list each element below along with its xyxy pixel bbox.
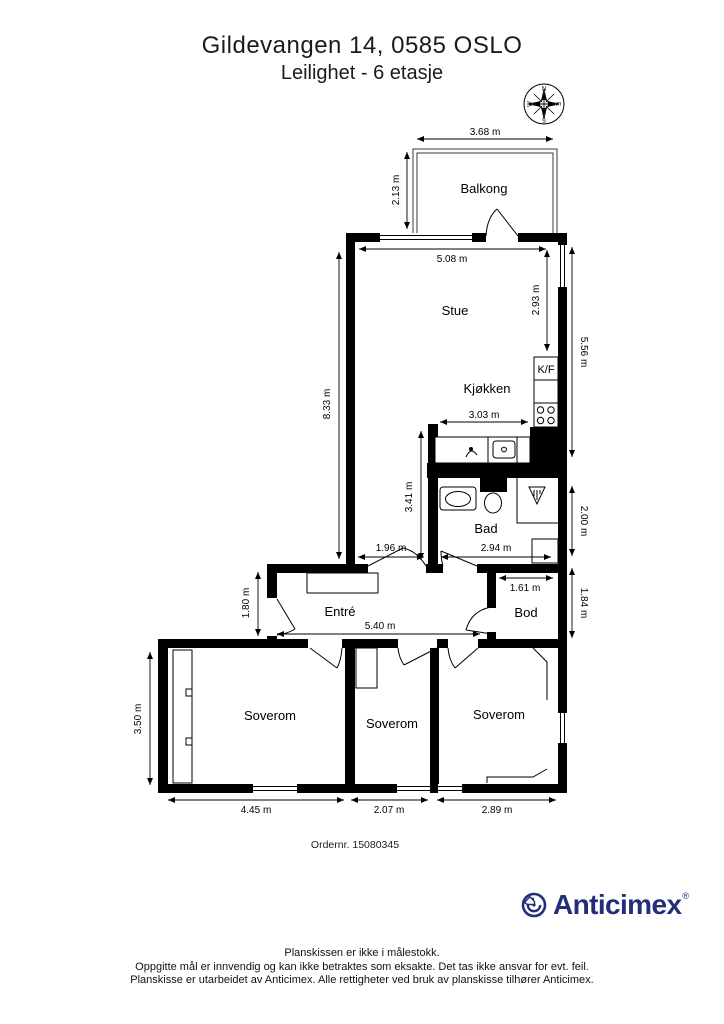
dim-kitchen-width: 3.03 m [469,410,500,421]
anticimex-swirl-icon [519,890,549,920]
dim-stue-right-depth: 2.93 m [531,285,542,316]
shower-enclosure [517,478,558,523]
anticimex-logo: Anticimex ® [519,889,689,921]
bedroom-left-closet [173,650,192,783]
dim-hall-depth: 3.41 m [404,482,415,513]
bathroom-cabinet [532,539,558,563]
bod-door [466,607,492,634]
dim-balcony-depth: 2.13 m [391,175,402,206]
entre-closet [307,573,378,593]
room-label-kf: K/F [537,364,554,376]
disclaimer: Planskissen er ikke i målestokk. Oppgitt… [0,947,724,988]
bedroom-right-wall-detail2 [487,769,547,783]
dim-bedroom-left-width: 4.45 m [241,805,272,816]
compass-west: W [528,101,534,107]
kitchen-sink [493,441,515,458]
dim-balcony-width: 3.68 m [470,127,501,138]
dim-stue-width: 5.08 m [437,254,468,265]
dim-bod-width: 1.61 m [510,583,541,594]
room-label-entre: Entré [324,604,355,619]
order-number: Ordernr. 15080345 [0,839,710,851]
compass-south: S [542,119,546,125]
registered-mark: ® [682,891,689,901]
dim-bod-depth: 1.84 m [578,588,589,619]
kitchen-counter [435,437,530,463]
room-label-soverom-right: Soverom [473,707,525,722]
dim-bedroom-west-depth: 3.50 m [133,704,144,735]
stove [534,403,558,427]
dim-entre-depth: 1.80 m [241,588,252,619]
room-label-bod: Bod [514,605,537,620]
room-label-balkong: Balkong [461,181,508,196]
room-label-bad: Bad [474,521,497,536]
disclaimer-line-2: Oppgitte mål er innvendig og kan ikke be… [0,961,724,975]
dim-west-side: 8.33 m [322,389,333,420]
bedroom-right-door [448,648,478,668]
kitchen-cabinet [534,380,558,403]
compass-east: E [555,102,561,106]
compass-north: N [542,87,546,93]
disclaimer-line-3: Planskisse er utarbeidet av Anticimex. A… [0,974,724,988]
dim-east-side-upper: 5.56 m [578,337,589,368]
shower-icon [529,487,545,504]
room-label-kjokken: Kjøkken [464,381,511,396]
toilet [485,493,502,513]
entrance-door [277,599,295,635]
room-label-soverom-middle: Soverom [366,716,418,731]
room-label-soverom-left: Soverom [244,708,296,723]
bedroom-middle-wardrobe [356,648,377,688]
bathroom-door [441,551,477,566]
dim-bath-width: 2.94 m [481,543,512,554]
dim-entre-width: 5.40 m [365,621,396,632]
bedroom-right-wall-detail [533,648,547,700]
disclaimer-line-1: Planskissen er ikke i målestokk. [0,947,724,961]
floor-plan-drawing: 3.68 m 2.13 m 5.08 m 2.93 m 8.33 m 5.56 … [0,0,724,1024]
compass-icon: N S W E [524,84,564,125]
bedroom-left-door [310,648,342,668]
dim-bedroom-middle-width: 2.07 m [374,805,405,816]
balcony-door [486,209,518,236]
dim-bath-depth: 2.00 m [578,506,589,537]
floor-plan-page: Gildevangen 14, 0585 OSLO Leilighet - 6 … [0,0,724,1024]
dim-passage-width: 1.96 m [376,543,407,554]
dim-bedroom-right-width: 2.89 m [482,805,513,816]
room-label-stue: Stue [442,303,469,318]
logo-text: Anticimex [553,889,681,921]
